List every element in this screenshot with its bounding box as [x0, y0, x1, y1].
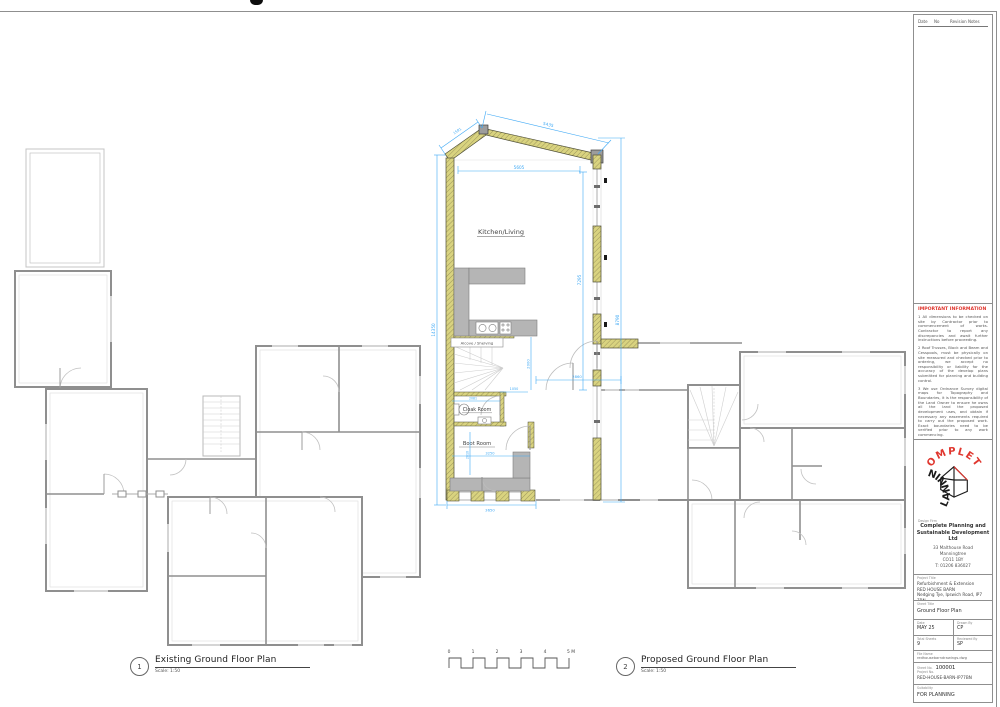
room-label-boot: Boot Room	[463, 441, 491, 447]
scalebar-label-2: 2	[496, 649, 499, 655]
info-note: 2 Roof Trusses, Block and Beam and Cessp…	[918, 346, 988, 383]
plan-number: 1	[137, 663, 141, 671]
important-information: IMPORTANT INFORMATION 1 All dimensions t…	[914, 304, 992, 440]
dim-left-total: 14350	[431, 323, 436, 337]
plans-canvas: Kitchen/Living Alcove / Shelving Cloak R…	[0, 0, 1000, 707]
meta-drawn-label: Drawn By	[957, 622, 989, 626]
revision-col-date: Date	[918, 19, 934, 24]
meta-reviewed: Reviewed By SP	[953, 635, 992, 650]
firm-address-line: T: 01206 836027	[916, 563, 990, 569]
dim-link: 2860	[572, 374, 582, 379]
project-code-value: RED-HOUSE-BARN-IP77BN	[917, 675, 989, 680]
meta-date-label: Date	[917, 622, 950, 626]
meta-drawn: Drawn By CP	[953, 620, 992, 635]
project-line3: Nedging Tye, Ipswich Road, IP7 7BN	[917, 592, 989, 601]
plan-title: Proposed Ground Floor Plan	[641, 655, 796, 665]
firm-name-line2: Sustainable Development Ltd	[916, 530, 990, 543]
drawing-sheet: Kitchen/Living Alcove / Shelving Cloak R…	[0, 0, 1000, 707]
meta-sheets: Total Sheets 9	[914, 635, 953, 650]
dim-right-outer: 8790	[615, 314, 620, 325]
sheet-number-section: Sheet No. 100001 Project No. RED-HOUSE-B…	[914, 663, 992, 685]
dim-bottom: 3650	[485, 508, 495, 513]
plan-number-badge: 1	[130, 657, 149, 676]
existing-plan-caption: 1 Existing Ground Floor Plan Scale: 1:50	[130, 655, 310, 676]
dim-boot-depth: 2810	[466, 451, 470, 459]
plan-title: Existing Ground Floor Plan	[155, 655, 310, 665]
scale-bar: 0 1 2 3 4 5 M	[448, 649, 576, 668]
dim-cloak-width: 2081	[469, 397, 477, 401]
plan-number-badge: 2	[616, 657, 635, 676]
meta-reviewed-label: Reviewed By	[957, 638, 989, 642]
room-label-cloak: Cloak Room	[463, 407, 492, 413]
dim-hall-door: 1050	[510, 387, 519, 391]
revision-table: Date No Revision Notes	[914, 15, 992, 304]
cloakroom-fixtures	[454, 404, 491, 424]
important-info-title: IMPORTANT INFORMATION	[918, 307, 988, 313]
revision-header-rule	[918, 26, 988, 27]
dim-right-inner: 7295	[577, 274, 582, 285]
meta-drawn-value: CP	[957, 626, 989, 631]
plan-scale: Scale: 1:50	[155, 669, 310, 674]
project-code-label: Project No.	[917, 671, 989, 675]
meta-grid: Date MAY 25 Drawn By CP Total Sheets 9 R…	[914, 620, 992, 651]
scalebar-label-5: 5 M	[567, 649, 575, 655]
kitchen-counters	[454, 268, 537, 336]
suitability-value: FOR PLANNING	[917, 692, 989, 698]
meta-date-value: MAY 25	[917, 626, 950, 631]
meta-date: Date MAY 25	[914, 620, 953, 635]
plan-number: 2	[623, 663, 627, 671]
firm-section: COMPLETE PLANNING Design Firm Complete P…	[914, 440, 992, 575]
info-note: 1 All dimensions to be checked on site b…	[918, 315, 988, 343]
revision-col-no: No	[934, 19, 950, 24]
suitability-label: Suitability	[917, 687, 989, 691]
dim-top-inner: 5605	[514, 165, 525, 170]
sheet-title-value: Ground Floor Plan	[917, 608, 989, 614]
sheet-title-section: Sheet Title Ground Floor Plan	[914, 601, 992, 620]
proposed-existing-house	[536, 340, 908, 591]
sheet-title-label: Sheet Title	[917, 603, 989, 607]
title-block: Date No Revision Notes IMPORTANT INFORMA…	[913, 14, 993, 703]
suitability-section: Suitability FOR PLANNING	[914, 685, 992, 702]
logo-word-planning: PLANNING	[916, 441, 953, 509]
caption-rule	[641, 667, 796, 668]
meta-sheets-label: Total Sheets	[917, 638, 950, 642]
project-section: Project Title Refurbishment & Extension …	[914, 575, 992, 601]
proposed-extension: Kitchen/Living Alcove / Shelving Cloak R…	[445, 125, 638, 501]
svg-text:COMPLETE: COMPLETE	[916, 441, 983, 470]
company-logo-icon: COMPLETE PLANNING	[916, 441, 992, 519]
scalebar-label-4: 4	[544, 649, 547, 655]
room-label-kitchen-living: Kitchen/Living	[478, 228, 524, 236]
meta-sheets-value: 9	[917, 642, 950, 647]
sheet-number-value: 100001	[936, 665, 956, 671]
revision-col-notes: Revision Notes	[950, 19, 988, 24]
proposed-plan-caption: 2 Proposed Ground Floor Plan Scale: 1:50	[616, 655, 796, 676]
existing-plan	[15, 149, 423, 648]
dim-hall: 2000	[526, 359, 531, 369]
file-value: redhousebarndrawings.dwg	[917, 656, 989, 660]
scalebar-label-0: 0	[448, 649, 451, 655]
logo-word-complete: COMPLETE	[916, 441, 983, 470]
info-note: 3 We use Ordnance Survey digital maps fo…	[918, 387, 988, 438]
caption-rule	[155, 667, 310, 668]
plan-scale: Scale: 1:50	[641, 669, 796, 674]
scalebar-label-1: 1	[472, 649, 475, 655]
dim-boot-width: 3250	[485, 451, 495, 455]
window-tag-icon	[604, 178, 607, 327]
scalebar-label-3: 3	[520, 649, 523, 655]
firm-name-line1: Complete Planning and	[916, 523, 990, 530]
meta-reviewed-value: SP	[957, 642, 989, 647]
room-label-alcove: Alcove / Shelving	[461, 341, 494, 346]
dim-top-slope: 5435	[543, 121, 555, 128]
svg-text:PLANNING: PLANNING	[916, 441, 953, 509]
file-section: File Name redhousebarndrawings.dwg	[914, 651, 992, 663]
